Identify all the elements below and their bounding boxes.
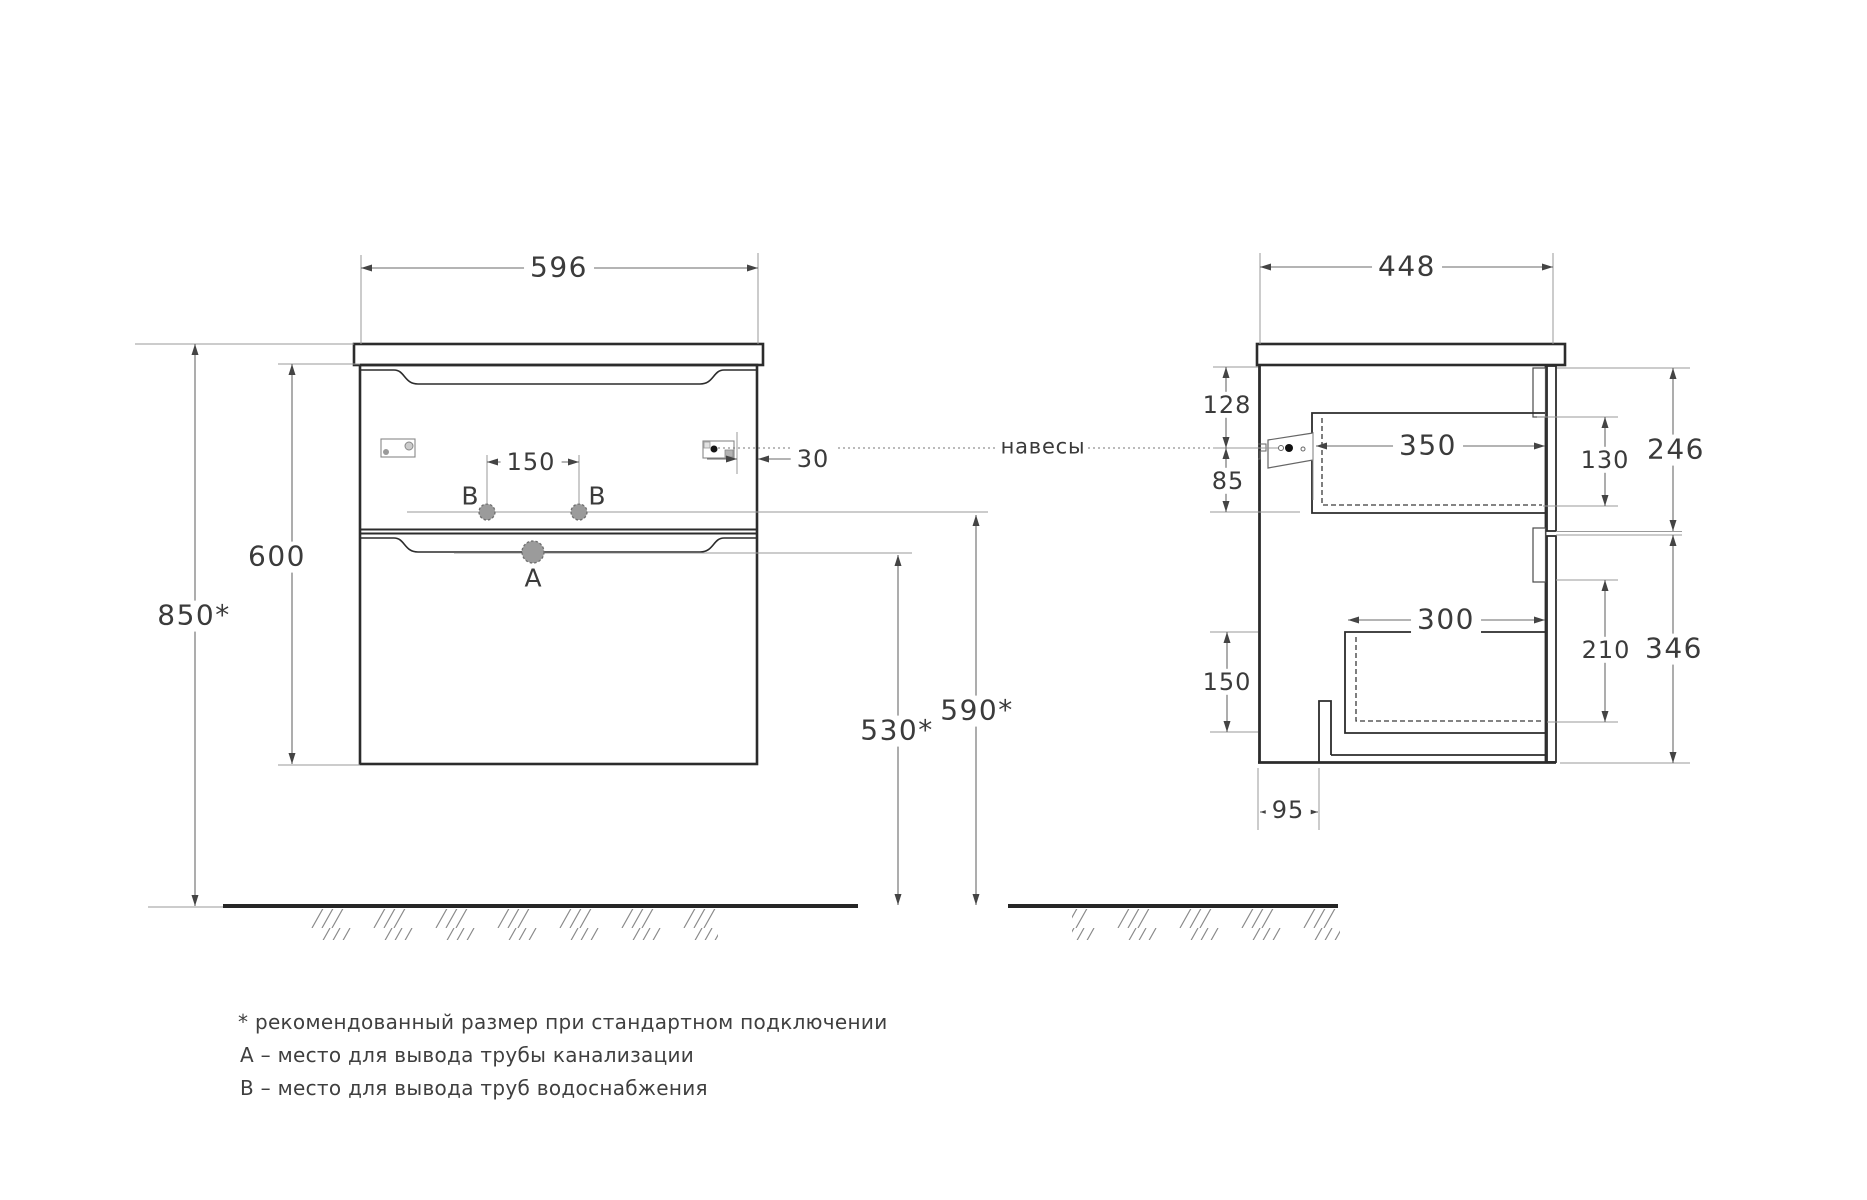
dim-128-label: 128 (1197, 392, 1258, 418)
side-view (1008, 253, 1690, 940)
front-cabinet-body (360, 365, 757, 764)
dim-590-label: 590* (934, 696, 1019, 727)
dim-85-label: 85 (1206, 468, 1251, 494)
side-lower-drawer-box (1345, 632, 1545, 733)
side-countertop (1257, 344, 1565, 365)
side-upper-recess (1533, 368, 1546, 417)
hangers-label: навесы (995, 435, 1092, 458)
dim-346-label: 346 (1639, 634, 1709, 665)
note-point-a: А – место для вывода трубы канализации (240, 1043, 694, 1067)
side-bottom-shelf-notch (1319, 701, 1545, 762)
point-b-left-label: В (459, 482, 480, 510)
dim-246-label: 246 (1641, 435, 1711, 466)
dim-530-label: 530* (854, 716, 939, 747)
left-hanger-plate-icon (381, 439, 415, 457)
front-floor-hatch (310, 909, 718, 940)
dim-210-label: 210 (1576, 637, 1637, 663)
side-lower-drawer-front (1547, 536, 1556, 762)
right-hanger-plate-icon (703, 441, 734, 458)
dim-350-label: 350 (1393, 431, 1463, 462)
dim-448-label: 448 (1372, 252, 1442, 283)
dim-150-front-label: 150 (501, 449, 562, 475)
front-view (135, 253, 1268, 940)
side-floor (1008, 906, 1340, 940)
front-floor (148, 906, 858, 940)
dim-596-label: 596 (524, 253, 594, 284)
dim-850-label: 850* (151, 601, 236, 632)
dim-150-side-label: 150 (1197, 669, 1258, 695)
dim-30-label: 30 (791, 446, 836, 472)
front-countertop (354, 344, 763, 365)
front-lower-drawer-recess (360, 538, 757, 552)
drain-point-a (522, 541, 544, 563)
front-upper-drawer-recess (360, 370, 757, 384)
water-point-b-left (479, 504, 495, 520)
note-point-b: В – место для вывода труб водоснабжения (240, 1076, 708, 1100)
point-b-right-label: В (586, 482, 607, 510)
side-floor-hatch (1072, 909, 1340, 940)
dim-95-label: 95 (1266, 797, 1311, 823)
technical-drawing-page: 596 850* 600 150 30 530* 590* В В А наве… (0, 0, 1867, 1200)
water-point-b-right (571, 504, 587, 520)
note-recommended-size: * рекомендованный размер при стандартном… (238, 1010, 888, 1034)
dim-300-label: 300 (1411, 605, 1481, 636)
dim-130-label: 130 (1575, 447, 1636, 473)
side-hanger-bracket-icon (1258, 433, 1313, 468)
side-lower-recess (1533, 528, 1546, 582)
dim-600-label: 600 (242, 542, 312, 573)
point-a-label: А (522, 564, 543, 592)
